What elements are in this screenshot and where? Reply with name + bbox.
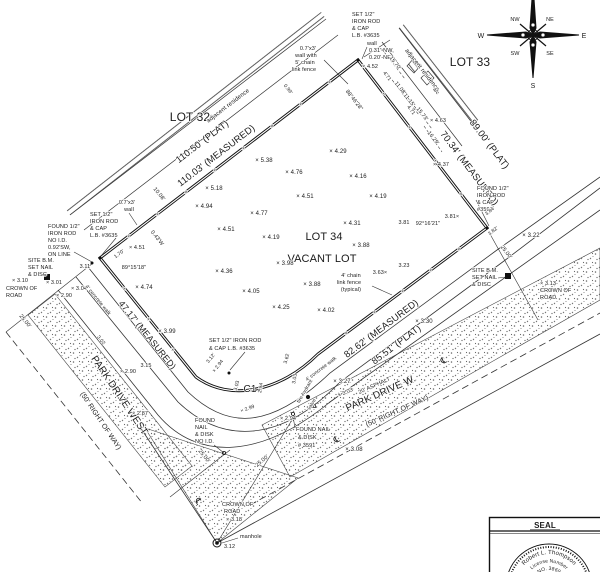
annotation-label: 1.70': [113, 248, 126, 260]
annotation-label: × 4.31: [343, 221, 361, 227]
annotation-label: × 4.19: [369, 194, 387, 200]
annotation-label: IRON ROD: [90, 219, 118, 225]
annotation-label: × 2.94: [280, 416, 296, 422]
note-site-bm-west: SITE B.M.: [28, 258, 54, 264]
annotation-label: IRON ROD: [352, 19, 380, 25]
annotation-label: & DISC: [472, 282, 491, 288]
compass-w-label: W: [478, 33, 485, 40]
annotation-label: × 4.19: [262, 235, 280, 241]
annotation-label: × 3.01: [46, 280, 62, 286]
annotation-label: × 2.90: [56, 293, 72, 299]
annotation-label: SET NAIL: [28, 265, 53, 271]
annotation-label: L.B. #3635: [352, 33, 380, 39]
annotation-label: × 3.10: [12, 278, 28, 284]
annotation-label: CROWN OF: [540, 288, 572, 294]
annotation-label: × 4.51: [129, 245, 145, 251]
note-found-nail-3591: FOUND NAIL: [296, 427, 330, 433]
annotation-label: 3.23: [398, 263, 409, 269]
annotation-label: × 4.63: [430, 118, 446, 124]
annotation-label: ROAD: [224, 509, 240, 515]
compass-nw-label: NW: [510, 17, 520, 23]
plat-drawing: SEAL Robert L. Thompson License Number N…: [0, 0, 600, 572]
annotation-label: SET NAIL: [472, 275, 497, 281]
annotation-label: ROAD: [540, 295, 556, 301]
seal-title: SEAL: [534, 521, 556, 530]
annotation-label: & CAP: [477, 200, 494, 206]
annotation-label: 0.7'x3': [119, 200, 135, 206]
curve-label: C1: [244, 384, 257, 395]
compass-sw-label: SW: [510, 51, 520, 57]
fence-x-mark: ×: [401, 289, 404, 295]
annotation-label: 89°15'18": [122, 265, 146, 271]
annotation-label: IRON ROD: [48, 231, 76, 237]
annotation-label: wall with: [294, 53, 317, 59]
annotation-label: & DISC: [28, 272, 47, 278]
annotation-label: × 3.22: [522, 233, 540, 239]
annotation-label: L.B. #3635: [90, 233, 118, 239]
fence-x-mark: ×: [373, 310, 376, 316]
corner-monument: [99, 257, 102, 260]
found-rod-point: [91, 262, 94, 265]
note-found-nail-noid: FOUND: [195, 418, 215, 424]
lot-33-label: LOT 33: [450, 55, 491, 69]
annotation-label: NAIL: [195, 425, 208, 431]
surveyor-seal: SEAL Robert L. Thompson License Number N…: [490, 518, 600, 572]
annotation-label: × 2.99: [240, 404, 256, 415]
annotation-label: 3.12: [224, 544, 235, 550]
note-found-rod-ne: FOUND 1/2": [477, 186, 509, 192]
fence-x-mark: ×: [328, 80, 331, 86]
fence-x-mark: ×: [123, 286, 126, 292]
annotation-label: link fence: [292, 67, 316, 73]
annotation-label: 3.11: [80, 264, 91, 270]
annotation-label: 4.71: [381, 71, 392, 83]
fence-x-mark: ×: [408, 125, 411, 131]
fence-x-mark: ×: [184, 190, 187, 196]
annotation-label: × 5.38: [255, 158, 273, 164]
annotation-label: NO I.D.: [195, 439, 214, 445]
annotation-label: (typical): [341, 287, 361, 293]
fence-x-mark: ×: [147, 317, 150, 323]
annotation-label: × 3.30: [415, 319, 433, 325]
annotation-label: 3.15: [140, 363, 151, 369]
annotation-label: × 4.52: [362, 64, 378, 70]
annotation-label: 16.29': [426, 130, 440, 146]
annotation-label: & DISK: [195, 432, 214, 438]
fence-x-mark: ×: [345, 331, 348, 337]
annotation-label: × 4.76: [285, 170, 303, 176]
annotation-label: × 3.13: [540, 281, 556, 287]
annotation-label: CROWN OF: [6, 286, 38, 292]
annotation-label: × 3.27: [333, 379, 351, 385]
compass-se-label: SE: [546, 51, 554, 57]
annotation-label: × 4.51: [217, 227, 235, 233]
annotation-label: CROWN OF: [222, 502, 254, 508]
annotation-label: 3.82': [487, 225, 500, 237]
annotation-label: wall: [366, 41, 377, 47]
fence-x-mark: ×: [127, 234, 130, 240]
annotation-label: × 3.99: [158, 329, 176, 335]
annotation-label: IRON ROD: [477, 193, 505, 199]
annotation-label: 4' concrete walk: [84, 284, 112, 317]
survey-plat-page: SEAL Robert L. Thompson License Number N…: [0, 0, 600, 572]
annotation-label: 4' chain: [341, 273, 361, 279]
annotation-label: 0.43'W: [149, 230, 165, 248]
manhole-label: manhole: [240, 534, 262, 540]
annotation-label: & CAP: [352, 26, 369, 32]
annotation-label: 88°46'28": [344, 89, 364, 112]
note-set-rod-top: SET 1/2": [352, 12, 375, 18]
corner-monument: [357, 59, 360, 62]
annotation-label: NO I.D.: [48, 238, 67, 244]
annotation-label: 15.73': [415, 106, 429, 122]
fence-x-mark: ×: [429, 268, 432, 274]
annotation-label: × 4.29: [329, 149, 347, 155]
compass-e-label: E: [582, 33, 587, 40]
annotation-label: × 4.51: [296, 194, 314, 200]
annotation-label: × 2.94: [211, 359, 225, 374]
fire-hydrant-symbol: [306, 395, 310, 399]
annotation-label: 92°16'21": [416, 221, 440, 227]
annotation-label: # 3591: [298, 443, 315, 449]
annotation-label: 3.63×: [373, 270, 387, 276]
fence-x-mark: ×: [242, 146, 245, 152]
annotation-label: 25.00': [499, 244, 513, 260]
annotation-label: 10.08': [152, 186, 166, 202]
annotation-label: 3.02: [95, 335, 106, 347]
fence-x-mark: ×: [270, 124, 273, 130]
annotation-label: ON LINE: [48, 252, 71, 258]
annotation-label: × 2.90: [120, 369, 136, 375]
annotation-label: × 4.74: [135, 285, 153, 291]
annotation-label: × 5.18: [205, 186, 223, 192]
fence-x-mark: ×: [213, 168, 216, 174]
corner-monument: [486, 227, 489, 230]
annotation-label: × 4.05: [242, 289, 260, 295]
dim-ne-plat: 89.00' (PLAT): [467, 118, 511, 172]
annotation-label: 0.7'x3': [300, 46, 316, 52]
annotation-label: ROAD: [6, 293, 22, 299]
compass-s-label: S: [531, 83, 536, 90]
lot-32-label: LOT 32: [170, 110, 211, 124]
annotation-label: 0.31'-NW,: [369, 48, 394, 54]
annotation-label: 3.81×: [445, 214, 459, 220]
fence-x-mark: ×: [171, 347, 174, 353]
annotation-label: × 4.77: [250, 211, 268, 217]
annotation-label: 2.94: [257, 382, 265, 393]
fence-x-mark: ×: [156, 212, 159, 218]
note-found-rod-west: FOUND 1/2": [48, 224, 80, 230]
compass-ne-label: NE: [546, 17, 554, 23]
annotation-label: 0.92'SW,: [48, 245, 71, 251]
annotation-label: 3.62: [283, 353, 291, 364]
note-set-rod-west: SET 1/2": [90, 212, 113, 218]
annotation-label: × 4.02: [317, 308, 335, 314]
annotation-label: & CAP L.B. #3635: [209, 346, 255, 352]
annotation-label: × 3.88: [303, 282, 321, 288]
annotation-label: 3.03: [291, 373, 299, 384]
annotation-label: × 3.08: [345, 447, 363, 453]
annotation-label: × 4.16: [349, 174, 367, 180]
annotation-label: 0.99': [282, 83, 294, 96]
annotation-label: × 2.87: [132, 411, 148, 417]
annotation-label: 15.70': [388, 55, 402, 71]
adjacent-residence-strips: [65, 12, 479, 230]
annotation-label: & DISK: [298, 435, 317, 441]
annotation-label: × 3.18: [226, 517, 242, 523]
dim-west-measured: 47.17' (MEASURED): [117, 299, 179, 372]
fence-x-mark: ×: [382, 91, 385, 97]
annotation-label: 5' chain: [295, 60, 315, 66]
vacant-lot-label: VACANT LOT: [287, 253, 356, 265]
fence-x-mark: ×: [299, 102, 302, 108]
fence-x-mark: ×: [460, 192, 463, 198]
benchmark-disc-east: [505, 273, 511, 279]
annotation-label: 3.12': [205, 352, 217, 365]
note-site-bm-east: SITE B.M.: [472, 268, 498, 274]
annotation-label: wall: [123, 207, 134, 213]
fence-x-mark: ×: [457, 247, 460, 253]
compass-rose-icon: [487, 0, 579, 78]
annotation-label: × 3.98: [276, 261, 294, 267]
annotation-label: & CAP: [90, 226, 107, 232]
annotation-label: link fence: [337, 280, 361, 286]
annotation-label: 3.81: [398, 220, 409, 226]
set-rod-point: [228, 372, 231, 375]
annotation-label: × 4.36: [215, 269, 233, 275]
annotation-label: × 3.88: [352, 243, 370, 249]
note-set-rod-curve: SET 1/2" IRON ROD: [209, 338, 261, 344]
fence-x-mark: ×: [434, 159, 437, 165]
annotation-label: × 4.25: [272, 305, 290, 311]
lot-34-label: LOT 34: [305, 231, 342, 243]
annotation-label: × 4.94: [195, 204, 213, 210]
